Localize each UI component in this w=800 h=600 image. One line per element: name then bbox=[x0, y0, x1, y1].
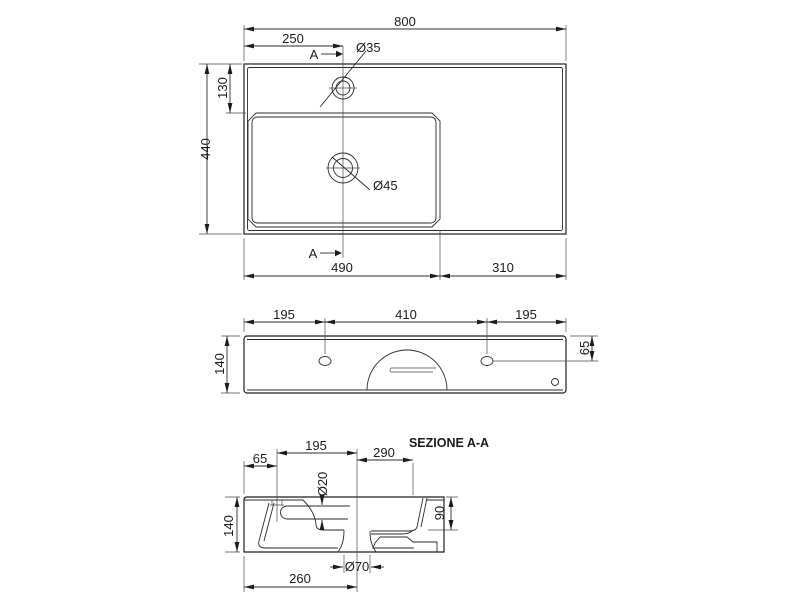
dim-rim-to-basin: 130 bbox=[215, 77, 230, 99]
section-marker-top: A bbox=[310, 47, 319, 62]
drawing-canvas: 800 250 Ø35 A 130 440 Ø45 490 310 A bbox=[0, 0, 800, 600]
dim-faucet-to-drain: 195 bbox=[305, 438, 327, 453]
section-extension-lines bbox=[225, 461, 458, 592]
section-interior bbox=[259, 498, 437, 552]
section-view: SEZIONE A-A 65 195 290 Ø20 90 140 260 Ø7… bbox=[221, 436, 489, 592]
drain-leader-line bbox=[332, 157, 370, 190]
siphon-arch bbox=[367, 350, 447, 390]
plan-dimension-lines bbox=[207, 29, 566, 276]
dim-hole-left: 195 bbox=[273, 307, 295, 322]
plan-inner-rim bbox=[248, 68, 563, 231]
fixing-hole-left bbox=[319, 357, 331, 366]
technical-drawing-page: 800 250 Ø35 A 130 440 Ø45 490 310 A bbox=[0, 0, 800, 600]
front-view: 195 410 195 140 65 bbox=[212, 307, 598, 393]
front-small-hole bbox=[552, 379, 559, 386]
dim-basin-depth: 90 bbox=[432, 506, 447, 520]
dim-hole-from-top: 65 bbox=[577, 341, 592, 355]
front-dimension-lines bbox=[227, 322, 592, 393]
section-marker-bottom: A bbox=[309, 246, 318, 261]
plan-view: 800 250 Ø35 A 130 440 Ø45 490 310 A bbox=[198, 14, 566, 280]
dim-overall-depth: 440 bbox=[198, 138, 213, 160]
front-body bbox=[244, 336, 566, 393]
dim-deck-span: 310 bbox=[492, 260, 514, 275]
fixing-hole-right bbox=[481, 357, 493, 366]
front-extension-lines bbox=[221, 318, 598, 393]
dim-back-offset: 65 bbox=[253, 451, 267, 466]
dim-drain-to-rim: 290 bbox=[373, 445, 395, 460]
label-drain-dia: Ø45 bbox=[373, 178, 398, 193]
dim-front-height: 140 bbox=[212, 353, 227, 375]
plan-basin bbox=[248, 113, 440, 227]
dim-hole-right: 195 bbox=[515, 307, 537, 322]
plan-extension-lines bbox=[199, 25, 566, 280]
label-faucet-dia: Ø35 bbox=[356, 40, 381, 55]
dim-overflow-dia: Ø20 bbox=[315, 472, 330, 497]
dim-section-height: 140 bbox=[221, 515, 236, 537]
plan-outer-rim bbox=[244, 64, 566, 234]
dim-drain-offset: 260 bbox=[289, 571, 311, 586]
dim-basin-span: 490 bbox=[331, 260, 353, 275]
dim-faucet-offset: 250 bbox=[282, 31, 304, 46]
section-title: SEZIONE A-A bbox=[409, 436, 489, 450]
dim-waste-dia: Ø70 bbox=[345, 559, 370, 574]
dim-overall-width: 800 bbox=[394, 14, 416, 29]
dim-hole-spacing: 410 bbox=[395, 307, 417, 322]
